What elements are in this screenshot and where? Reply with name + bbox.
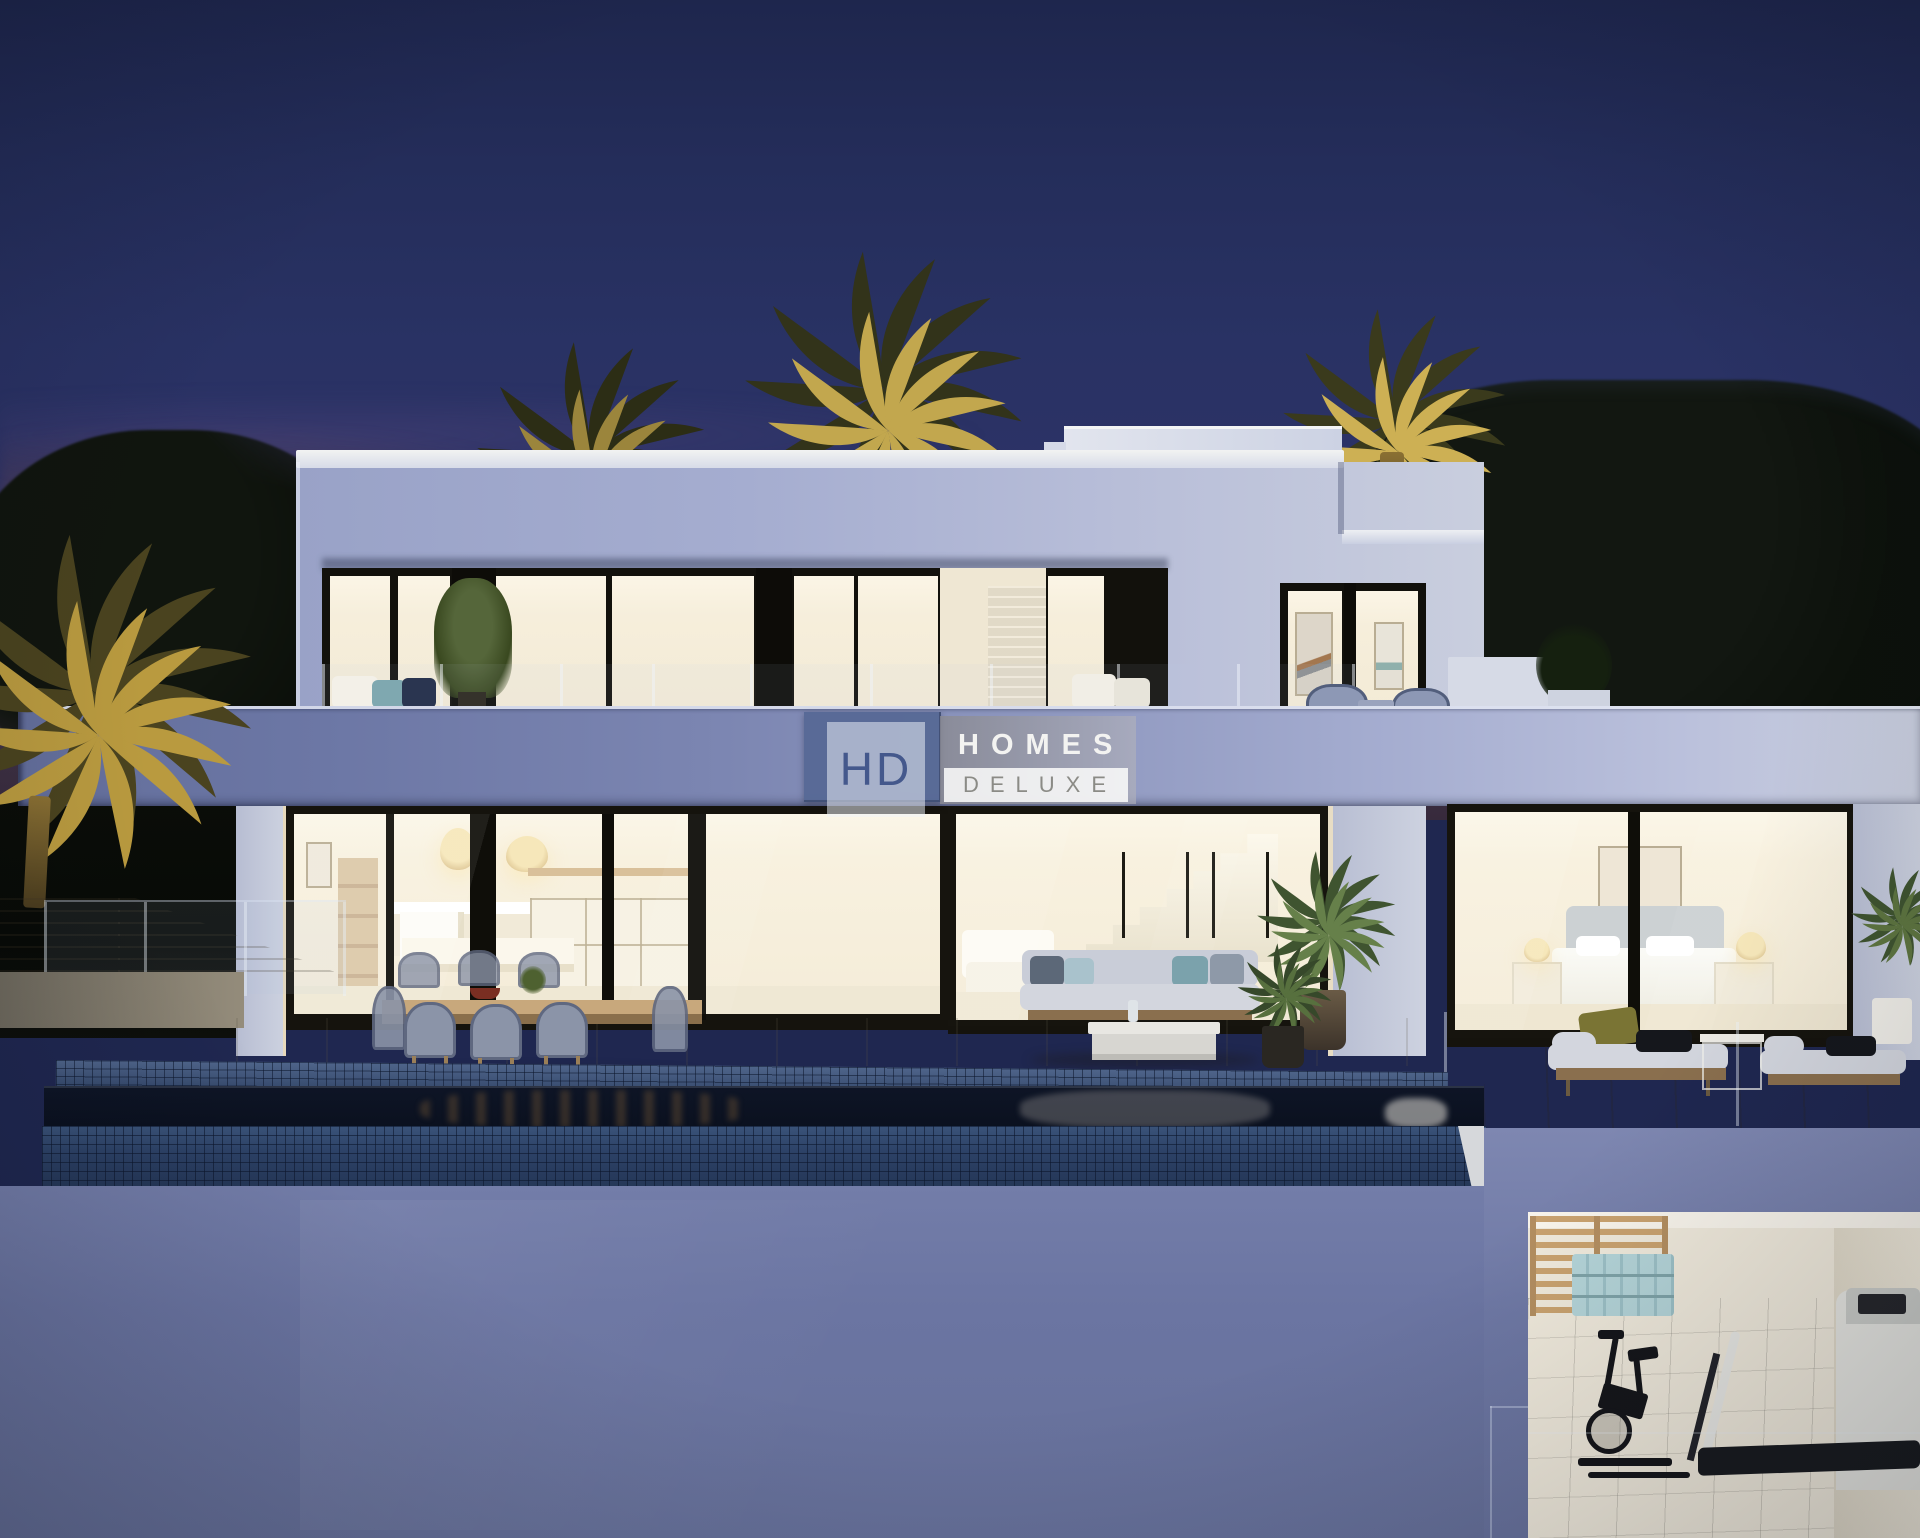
roof-slab-edge [296, 450, 1344, 468]
treadmill-screen [1858, 1294, 1906, 1314]
coffee-table-top [1088, 1022, 1220, 1034]
logo-monogram: HD [827, 734, 925, 804]
table-plant [520, 966, 546, 994]
wall-sheen [300, 1200, 1200, 1530]
side-table-frame [1702, 1042, 1762, 1090]
logo-word-deluxe: DELUXE [944, 768, 1128, 802]
daybed-leg [1566, 1080, 1570, 1096]
plant-pot-white [1872, 998, 1912, 1044]
terrace-glass-balustrade [322, 664, 1356, 710]
dining-chair [470, 1004, 522, 1060]
coffee-table-base [1092, 1034, 1216, 1060]
dining-chair-back [458, 950, 500, 986]
basement-glass-edge [1490, 1406, 1492, 1538]
carafe [1128, 1000, 1138, 1022]
terrace-sofa-pillow [372, 680, 406, 708]
glass-reflection [294, 814, 940, 1014]
basement-glass-edge [1490, 1406, 1530, 1408]
outdoor-sofa-seat [1020, 984, 1260, 1010]
right-wing-roof-edge [1342, 530, 1484, 544]
facade-corner-highlight [296, 462, 300, 710]
rolled-towel [1636, 1030, 1692, 1052]
dining-chair [536, 1002, 588, 1058]
window-frame-top [1447, 804, 1855, 812]
dining-chair-end [652, 986, 688, 1052]
glass-reflection [1455, 812, 1847, 1030]
yoga-mats-stack [1572, 1254, 1674, 1316]
side-table-top [1700, 1034, 1764, 1042]
patio-plant-icon [1846, 870, 1920, 970]
bike-base-rail [1588, 1472, 1690, 1478]
sofa-base [1028, 1010, 1252, 1020]
villa-render: HD HOMES DELUXE [0, 0, 1920, 1538]
bike-seat [1598, 1330, 1624, 1339]
terrace-sofa-pillow [1114, 678, 1150, 708]
railing-glass-edge [1736, 1022, 1739, 1126]
bike-base [1578, 1458, 1672, 1466]
bike-flywheel [1586, 1408, 1632, 1454]
rolled-towel [1826, 1036, 1876, 1056]
pavement-left [0, 972, 244, 1028]
terrace-parapet [1448, 657, 1548, 709]
sofa-pillow [1064, 958, 1094, 986]
pool-infinity-edge-tiles [42, 1126, 1486, 1190]
framed-art [1374, 622, 1404, 690]
dining-chair [404, 1002, 456, 1058]
fruit-bowl [470, 988, 500, 999]
sofa-pillow [1172, 956, 1208, 986]
terrace-sofa-pillow [402, 678, 436, 708]
daybed-base [1768, 1074, 1900, 1085]
plant-pot-black [1262, 1026, 1304, 1068]
dining-chair-back [398, 952, 440, 988]
terrace-sofa-pillow [1072, 674, 1116, 708]
facade-step-shadow [1338, 462, 1344, 534]
daybed-base [1556, 1068, 1726, 1080]
gym-glass-line [1528, 1432, 1920, 1434]
dining-chair-end [372, 986, 406, 1050]
sofa-pillow [1030, 956, 1064, 986]
logo-word-homes: HOMES [952, 724, 1132, 766]
